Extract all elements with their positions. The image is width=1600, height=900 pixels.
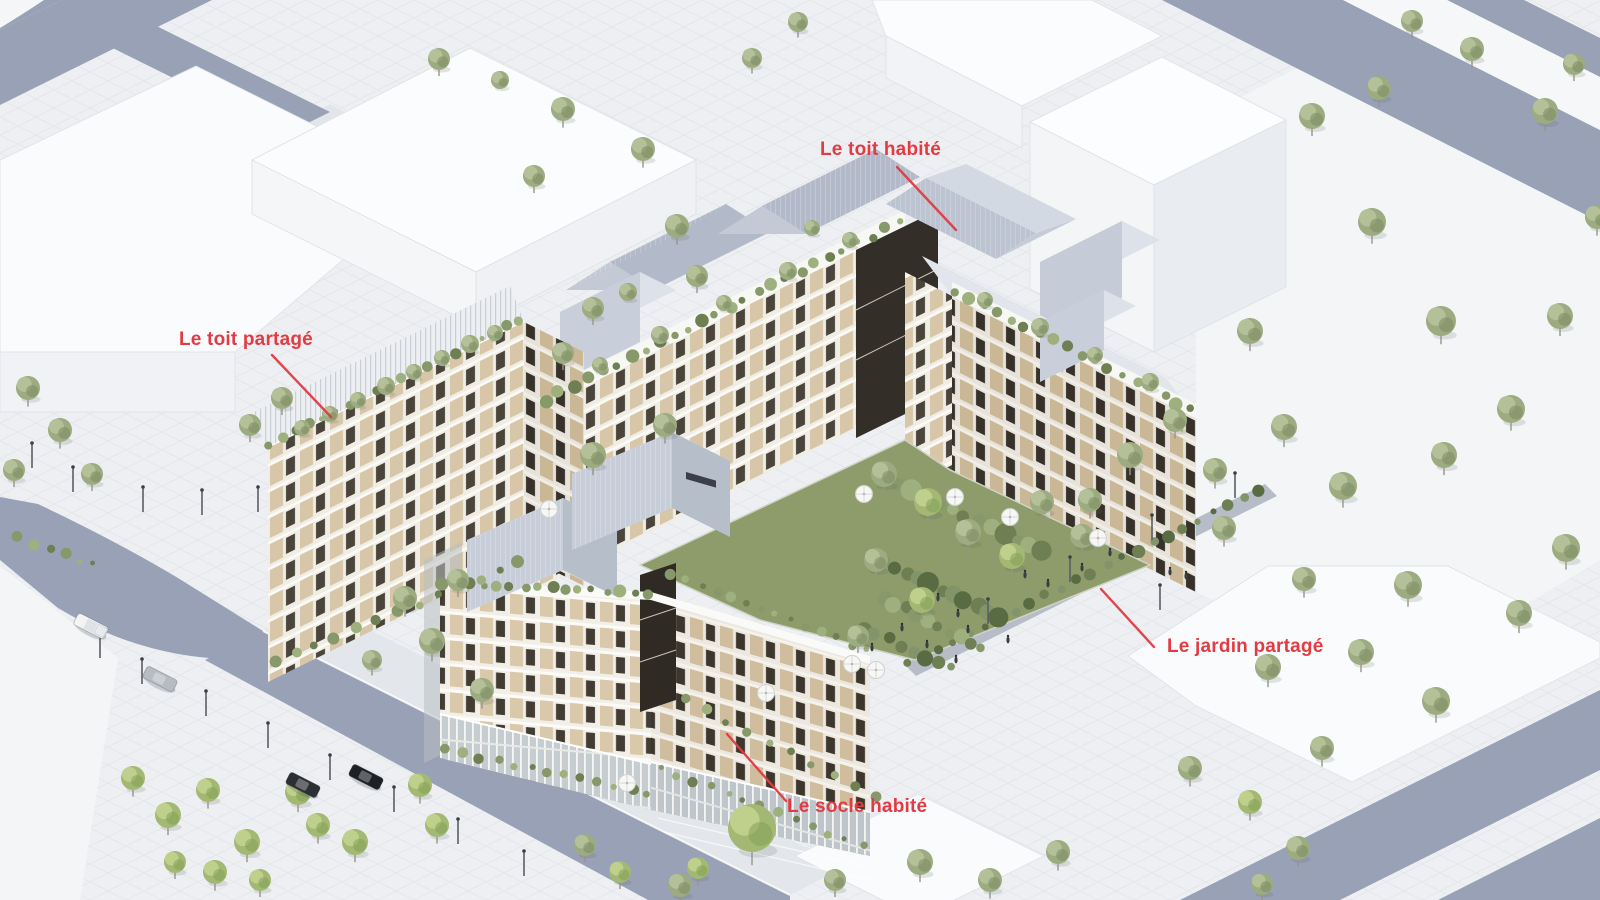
- parasol: [758, 685, 775, 702]
- person: [956, 609, 959, 618]
- person: [966, 625, 969, 634]
- parasol: [947, 489, 964, 506]
- parasol: [619, 775, 636, 792]
- person: [870, 643, 873, 652]
- facade-notch: [640, 563, 676, 712]
- parasol: [844, 656, 861, 673]
- east-wing-sw-face: [905, 272, 952, 470]
- label-jardin-partage: Le jardin partagé: [1167, 636, 1324, 658]
- parasol: [1002, 509, 1019, 526]
- parasol: [1090, 530, 1107, 547]
- architectural-rendering: Le toit habité Le toit partagé Le jardin…: [0, 0, 1600, 900]
- person: [1168, 567, 1171, 576]
- person: [1023, 570, 1026, 579]
- scene-illustration: [0, 0, 1600, 900]
- person: [1184, 571, 1187, 580]
- person: [1108, 548, 1111, 557]
- person: [936, 593, 939, 602]
- label-socle-habite: Le socle habité: [787, 796, 927, 818]
- person: [1046, 579, 1049, 588]
- person: [925, 640, 928, 649]
- parasol: [856, 486, 873, 503]
- label-toit-partage: Le toit partagé: [179, 329, 313, 351]
- parasol: [868, 662, 885, 679]
- person: [1080, 563, 1083, 572]
- person: [900, 623, 903, 632]
- parasol: [541, 501, 558, 518]
- label-toit-habite: Le toit habité: [820, 139, 941, 161]
- person: [1006, 635, 1009, 644]
- person: [954, 655, 957, 664]
